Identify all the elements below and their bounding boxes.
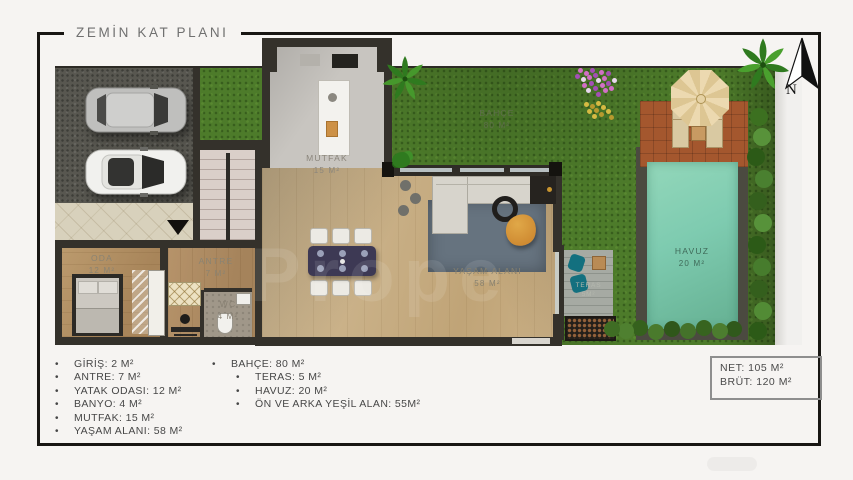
room-label-mutfak: MUTFAK15 M² [287, 153, 367, 176]
legend-outdoor: BAHÇE: 80 M² TERAS: 5 M² HAVUZ: 20 M² ÖN… [210, 358, 420, 412]
legend-item: BAHÇE: 80 M² [210, 358, 420, 371]
floor-plan-page: Prope MUTFAK15 M² BAHÇE80 M² HAVUZ20 M² … [0, 0, 853, 480]
room-label-havuz: HAVUZ20 M² [650, 246, 734, 269]
legend-item: ÖN VE ARKA YEŞİL ALAN: 55M² [234, 398, 420, 411]
room-label-teras: TERAS5M² [566, 281, 611, 299]
room-label-yasam-alani: YAŞAM ALANI58 M² [440, 266, 535, 289]
legend-item: TERAS: 5 M² [234, 371, 420, 384]
room-label-bahce: BAHÇE80 M² [455, 108, 539, 131]
legend-item: MUTFAK: 15 M² [53, 412, 183, 425]
area-summary-box: NET: 105 M² BRÜT: 120 M² [710, 356, 822, 400]
legend-item: ANTRE: 7 M² [53, 371, 183, 384]
legend-rooms: GİRİŞ: 2 M² ANTRE: 7 M² YATAK ODASI: 12 … [53, 358, 183, 438]
room-label-antre: ANTRE7 M² [186, 256, 246, 279]
legend-item: BANYO: 4 M² [53, 398, 183, 411]
legend-item: YATAK ODASI: 12 M² [53, 385, 183, 398]
room-label-wc: WC4 M² [206, 299, 250, 322]
legend-item: YAŞAM ALANI: 58 M² [53, 425, 183, 438]
page-title: ZEMİN KAT PLANI [64, 25, 241, 40]
room-label-oda: ODA12 M² [72, 253, 132, 276]
legend-item: GİRİŞ: 2 M² [53, 358, 183, 371]
brut-area: BRÜT: 120 M² [720, 375, 812, 389]
watermark-logo [707, 457, 757, 471]
net-area: NET: 105 M² [720, 361, 812, 375]
legend-item: HAVUZ: 20 M² [234, 385, 420, 398]
